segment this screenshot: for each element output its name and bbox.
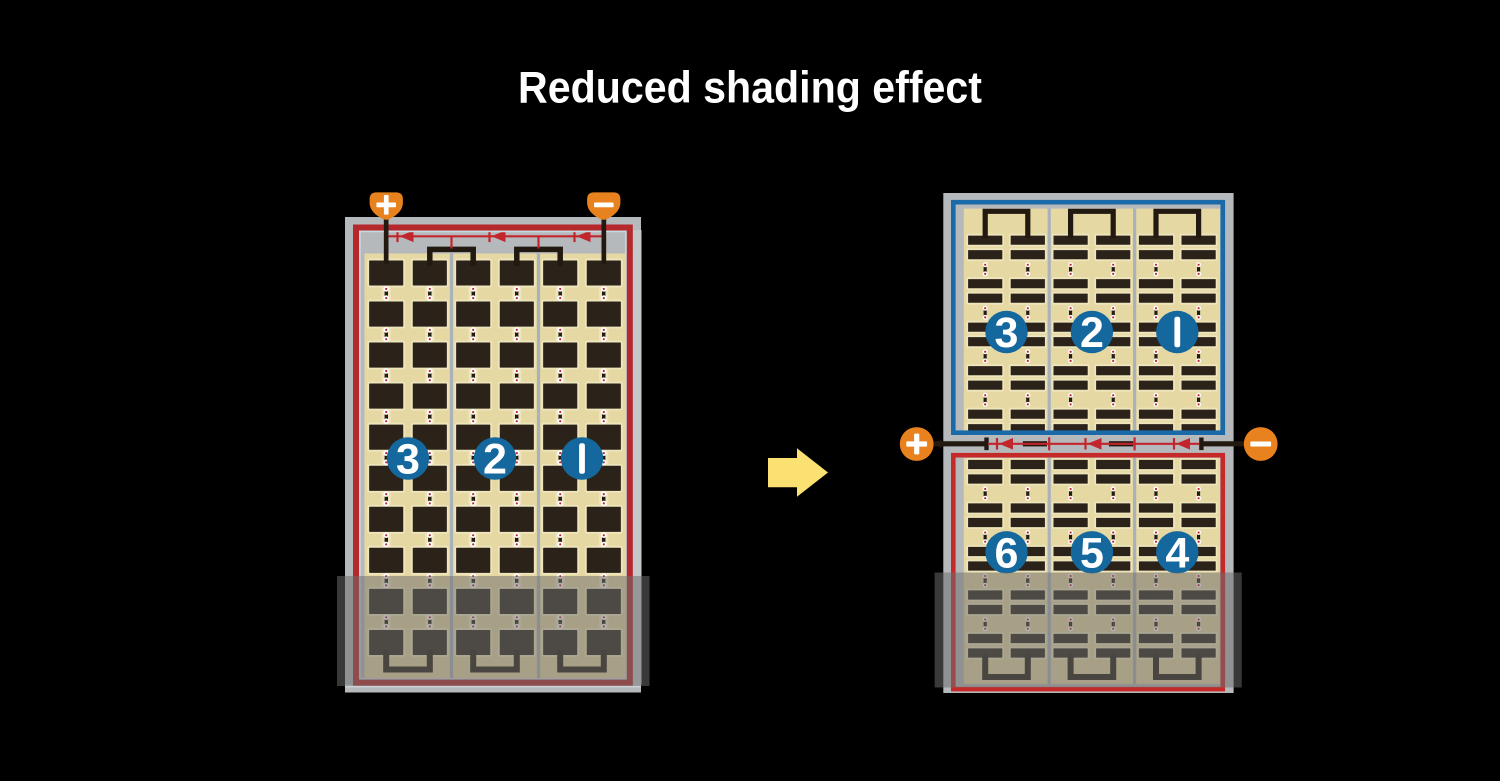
svg-text:2: 2 bbox=[1080, 309, 1104, 357]
svg-text:Reduced shading effect: Reduced shading effect bbox=[518, 64, 982, 113]
svg-text:6: 6 bbox=[995, 530, 1019, 578]
svg-text:3: 3 bbox=[396, 436, 420, 484]
svg-text:3: 3 bbox=[995, 309, 1019, 357]
svg-text:2: 2 bbox=[483, 436, 507, 484]
svg-text:4: 4 bbox=[1165, 530, 1189, 578]
svg-text:5: 5 bbox=[1080, 530, 1104, 578]
